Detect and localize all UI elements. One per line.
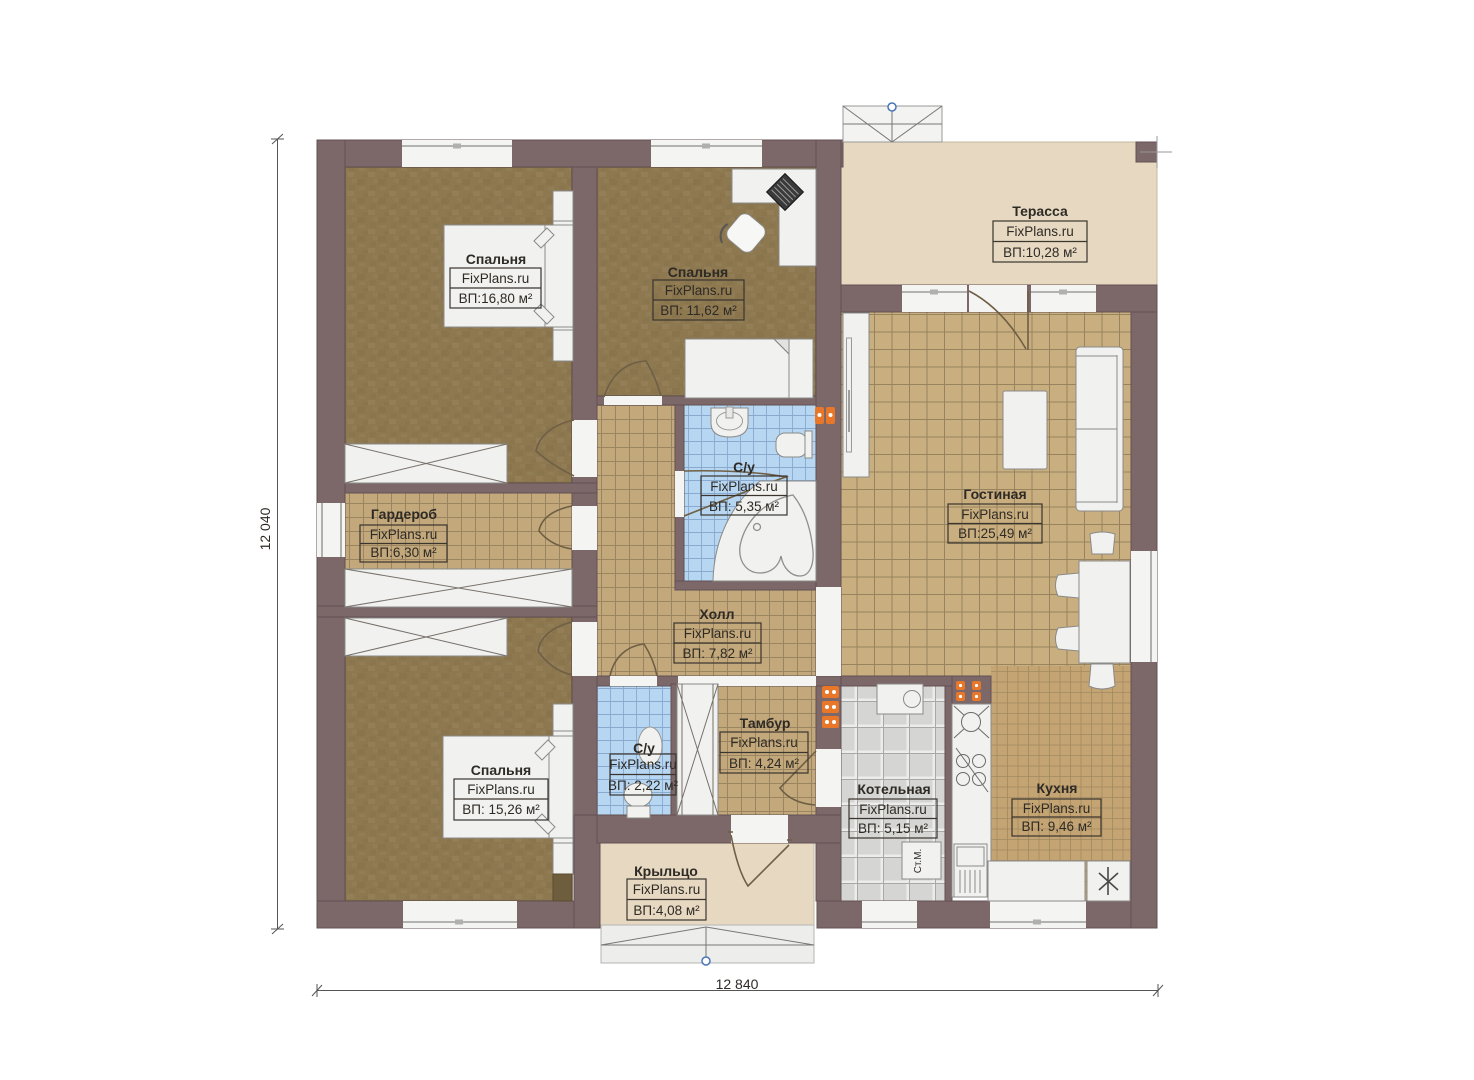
svg-text:Гостиная: Гостиная bbox=[963, 486, 1026, 502]
svg-text:Крыльцо: Крыльцо bbox=[634, 863, 698, 879]
svg-text:Холл: Холл bbox=[699, 606, 734, 622]
svg-text:ВП: 9,46 м²: ВП: 9,46 м² bbox=[1021, 819, 1092, 834]
svg-text:FixPlans.ru: FixPlans.ru bbox=[370, 527, 438, 542]
svg-text:12 840: 12 840 bbox=[716, 976, 759, 992]
svg-text:ВП:6,30 м²: ВП:6,30 м² bbox=[370, 545, 437, 560]
svg-text:Спальня: Спальня bbox=[668, 264, 728, 280]
svg-text:FixPlans.ru: FixPlans.ru bbox=[633, 882, 701, 897]
svg-text:ВП: 11,62 м²: ВП: 11,62 м² bbox=[660, 303, 737, 318]
svg-text:ВП: 4,24 м²: ВП: 4,24 м² bbox=[729, 756, 800, 771]
svg-text:Терасса: Терасса bbox=[1012, 203, 1068, 219]
svg-text:Кухня: Кухня bbox=[1037, 780, 1078, 796]
svg-text:Спальня: Спальня bbox=[471, 762, 531, 778]
svg-text:ВП: 15,26 м²: ВП: 15,26 м² bbox=[462, 802, 540, 817]
svg-text:ВП: 5,15 м²: ВП: 5,15 м² bbox=[858, 821, 929, 836]
svg-text:FixPlans.ru: FixPlans.ru bbox=[710, 479, 778, 494]
svg-text:12 040: 12 040 bbox=[257, 507, 273, 550]
svg-text:Котельная: Котельная bbox=[857, 781, 930, 797]
svg-text:Ст.М.: Ст.М. bbox=[913, 849, 924, 874]
svg-text:ВП:10,28 м²: ВП:10,28 м² bbox=[1003, 245, 1077, 260]
svg-text:ВП: 7,82 м²: ВП: 7,82 м² bbox=[682, 646, 753, 661]
svg-text:ВП: 5,35 м²: ВП: 5,35 м² bbox=[709, 499, 780, 514]
svg-text:FixPlans.ru: FixPlans.ru bbox=[1023, 801, 1091, 816]
svg-text:ВП:16,80 м²: ВП:16,80 м² bbox=[459, 291, 533, 306]
svg-text:FixPlans.ru: FixPlans.ru bbox=[462, 271, 530, 286]
svg-text:Спальня: Спальня bbox=[466, 251, 526, 267]
svg-text:ВП:25,49 м²: ВП:25,49 м² bbox=[958, 526, 1032, 541]
svg-text:FixPlans.ru: FixPlans.ru bbox=[961, 507, 1029, 522]
svg-text:FixPlans.ru: FixPlans.ru bbox=[730, 735, 798, 750]
svg-text:FixPlans.ru: FixPlans.ru bbox=[684, 626, 752, 641]
svg-text:Тамбур: Тамбур bbox=[740, 715, 791, 731]
svg-text:FixPlans.ru: FixPlans.ru bbox=[859, 802, 927, 817]
svg-text:FixPlans.ru: FixPlans.ru bbox=[1006, 224, 1074, 239]
svg-text:FixPlans.ru: FixPlans.ru bbox=[609, 757, 677, 772]
svg-text:ВП: 2,22 м²: ВП: 2,22 м² bbox=[608, 778, 679, 793]
svg-text:FixPlans.ru: FixPlans.ru bbox=[467, 782, 535, 797]
svg-text:FixPlans.ru: FixPlans.ru bbox=[665, 283, 733, 298]
svg-text:С/у: С/у bbox=[733, 459, 755, 475]
svg-text:ВП:4,08 м²: ВП:4,08 м² bbox=[633, 903, 700, 918]
svg-text:Гардероб: Гардероб bbox=[371, 506, 438, 522]
